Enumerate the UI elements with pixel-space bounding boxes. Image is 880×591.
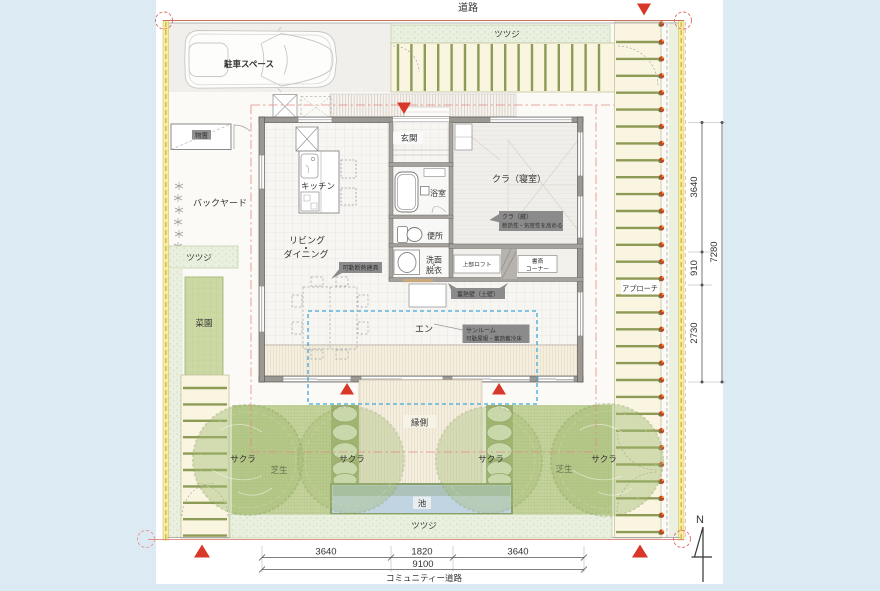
svg-text:蓄熱壁（土壁）: 蓄熱壁（土壁）: [457, 291, 499, 299]
svg-text:脱衣: 脱衣: [426, 265, 442, 275]
svg-text:3640: 3640: [315, 547, 336, 558]
svg-text:サクラ: サクラ: [339, 454, 365, 464]
svg-text:可動断熱建具: 可動断熱建具: [342, 264, 378, 272]
svg-text:コーナー: コーナー: [526, 266, 549, 273]
svg-text:クラ（蔵）: クラ（蔵）: [502, 213, 532, 221]
svg-text:3640: 3640: [507, 547, 528, 558]
svg-text:9100: 9100: [412, 559, 433, 570]
svg-text:ツツジ: ツツジ: [411, 521, 437, 531]
svg-text:2730: 2730: [689, 322, 700, 343]
svg-text:サクラ: サクラ: [230, 454, 256, 464]
svg-text:エン: エン: [415, 324, 433, 334]
svg-text:N: N: [696, 514, 704, 526]
svg-text:サクラ: サクラ: [478, 454, 504, 464]
svg-text:駐車スペース: 駐車スペース: [224, 59, 274, 69]
svg-text:コミュニティー道路: コミュニティー道路: [386, 573, 462, 583]
svg-text:3640: 3640: [689, 176, 700, 197]
svg-text:ツツジ: ツツジ: [494, 29, 520, 39]
svg-text:1820: 1820: [411, 547, 432, 558]
svg-text:便所: 便所: [427, 231, 443, 241]
svg-text:クラ（寝室）: クラ（寝室）: [492, 173, 546, 184]
svg-text:池: 池: [418, 499, 427, 509]
svg-text:上部ロフト: 上部ロフト: [463, 261, 492, 269]
svg-text:サクラ: サクラ: [591, 454, 617, 464]
svg-text:玄関: 玄関: [400, 133, 417, 143]
svg-text:縁側: 縁側: [411, 418, 428, 428]
svg-text:キッチン: キッチン: [301, 181, 335, 191]
svg-text:菜園: 菜園: [195, 318, 212, 328]
svg-text:浴室: 浴室: [430, 188, 446, 198]
svg-text:7280: 7280: [709, 241, 720, 262]
svg-text:リビング: リビング: [289, 235, 325, 246]
svg-text:断熱性・気密性を高める: 断熱性・気密性を高める: [502, 222, 563, 230]
svg-text:洗面: 洗面: [426, 255, 442, 265]
svg-text:物置: 物置: [195, 131, 209, 140]
svg-text:アプローチ: アプローチ: [622, 284, 658, 293]
svg-text:サンルーム: サンルーム: [466, 328, 496, 335]
svg-text:道路: 道路: [458, 1, 478, 14]
svg-text:910: 910: [689, 260, 700, 276]
svg-text:ツツジ: ツツジ: [186, 253, 212, 263]
svg-text:書斎: 書斎: [532, 257, 544, 265]
svg-text:ダイニング: ダイニング: [283, 249, 328, 260]
svg-text:可動屋根・蓄熱蓄冷床: 可動屋根・蓄熱蓄冷床: [466, 335, 522, 343]
svg-text:バックヤード: バックヤード: [193, 198, 247, 208]
